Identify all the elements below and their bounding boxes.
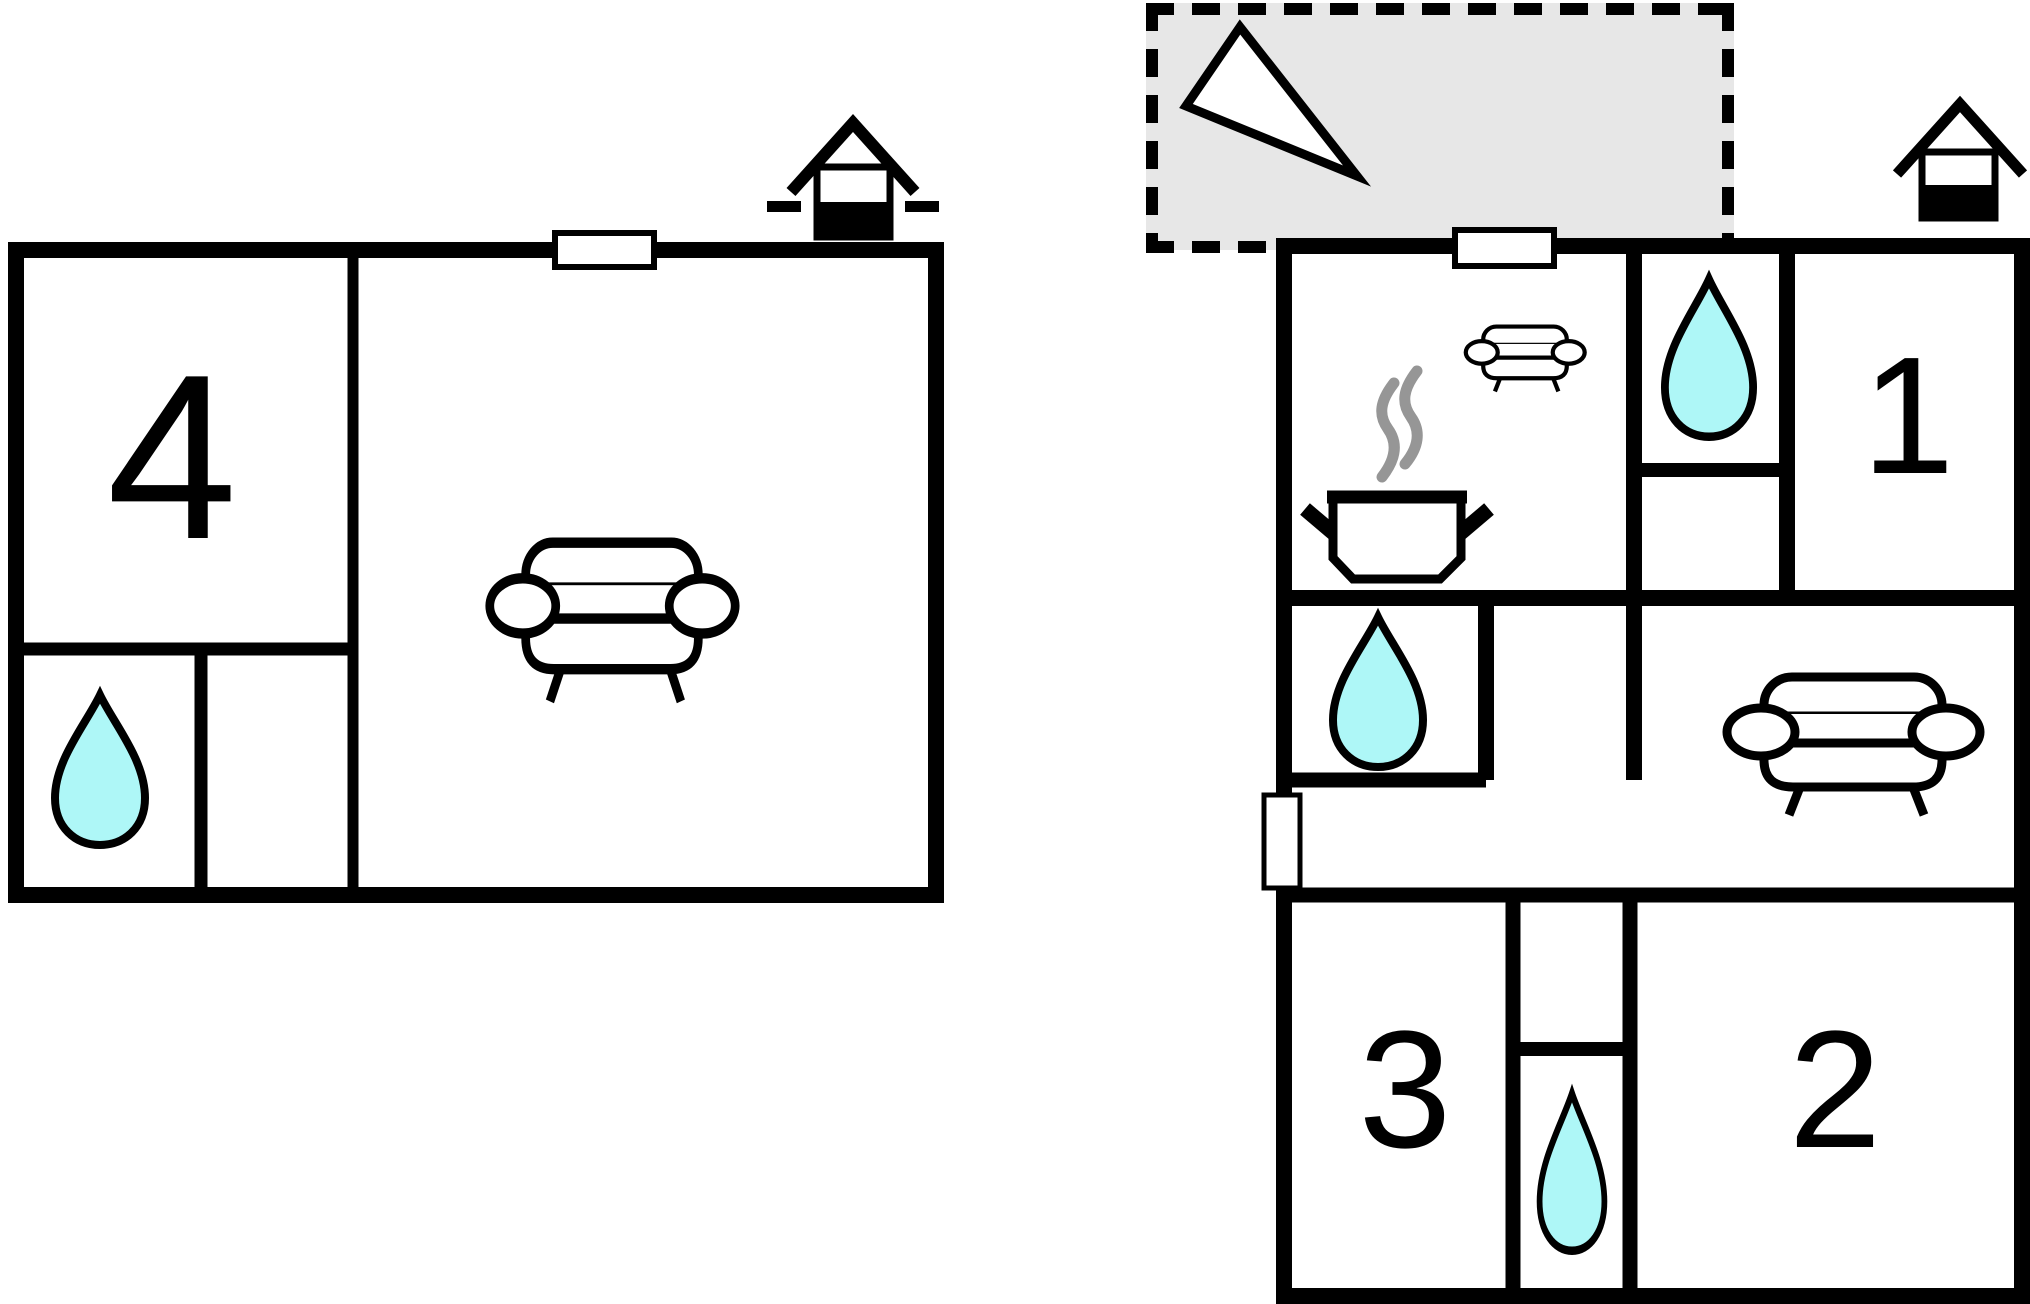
window-marker-right-building (1455, 230, 1554, 266)
house-icon-left (767, 123, 939, 237)
window-marker-left-building (555, 233, 654, 267)
terrace-area (1146, 3, 1734, 250)
door-marker-left-wall (1264, 795, 1300, 888)
house-icon-left-dash (767, 201, 801, 212)
house-icon-right-dash (905, 201, 939, 212)
room-2-label: 2 (1789, 997, 1882, 1183)
water-drop-icon-bottom-bathroom (1540, 1093, 1605, 1251)
sofa-icon-right-living-room (1727, 677, 1980, 815)
water-drop-icon-top-shower (1665, 279, 1753, 437)
room-4-label: 4 (107, 325, 238, 588)
steam-icon (1382, 383, 1395, 477)
room-1-label: 1 (1862, 323, 1955, 509)
sofa-icon-kitchen (1466, 327, 1585, 392)
pot-body (1333, 495, 1461, 579)
cooking-pot-icon (1305, 371, 1489, 579)
floor-plan-right-building: 1 2 3 (1146, 3, 2023, 1296)
floor-plan-left-building: 4 (16, 123, 939, 895)
water-drop-icon-middle-bathroom (1333, 617, 1423, 767)
room-3-label: 3 (1359, 997, 1452, 1183)
house-icon-right (1897, 104, 2023, 218)
floor-plan-canvas: 4 (0, 0, 2030, 1304)
house-icon-box-fill (817, 202, 890, 237)
steam-icon (1405, 371, 1418, 464)
water-drop-icon-left-bathroom (55, 695, 145, 845)
sofa-icon-left-living-room (490, 543, 735, 702)
house-icon-box-fill (1922, 185, 1995, 218)
